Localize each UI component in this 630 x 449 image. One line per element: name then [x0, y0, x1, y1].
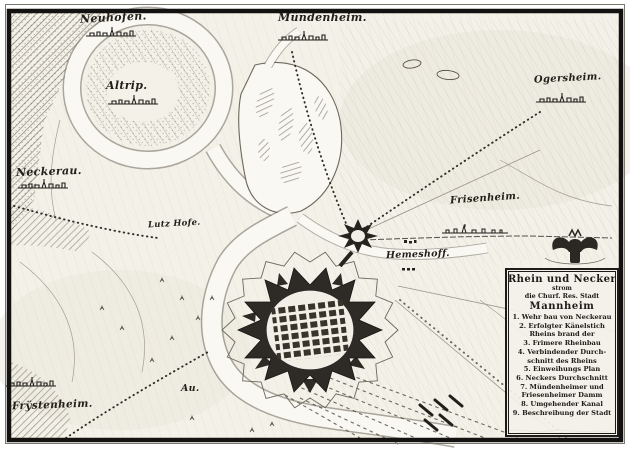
cartouche-item: 3. Frimere Rheinbau [510, 339, 614, 348]
historical-map-scan: Neuhofen. Mündenheim. Altrip. Neckerau. … [0, 0, 630, 449]
cartouche-item: 9. Beschreibung der Stadt [510, 409, 614, 418]
cartouche-item: 2. Erfolgter Känelstich [510, 322, 614, 331]
cartouche-item: 6. Neckers Durchschnitt [510, 374, 614, 383]
cartouche-item: 5. Einweihungs Plan [510, 365, 614, 374]
cartouche-item: schnitt des Rheins [510, 357, 614, 366]
legend-cartouche-inner: Rhein und Necker strom die Churf. Res. S… [508, 271, 616, 434]
cartouche-item: Friesenheimer Damm [510, 391, 614, 400]
legend-cartouche: Rhein und Necker strom die Churf. Res. S… [505, 268, 619, 437]
cartouche-item: 7. Mündenheimer und [510, 383, 614, 392]
terrain-hatch-right [340, 20, 620, 260]
city-blocks [271, 298, 349, 362]
cartouche-line: die Churf. Res. Stadt [525, 292, 599, 301]
cartouche-item: 1. Wehr bau von Neckerau [510, 313, 614, 322]
cartouche-item: 4. Verbindender Durch- [510, 348, 614, 357]
cartouche-city: Mannheim [530, 301, 595, 313]
cartouche-item: Rheins brand der [510, 330, 614, 339]
cartouche-item: 8. Umgehender Kanal [510, 400, 614, 409]
